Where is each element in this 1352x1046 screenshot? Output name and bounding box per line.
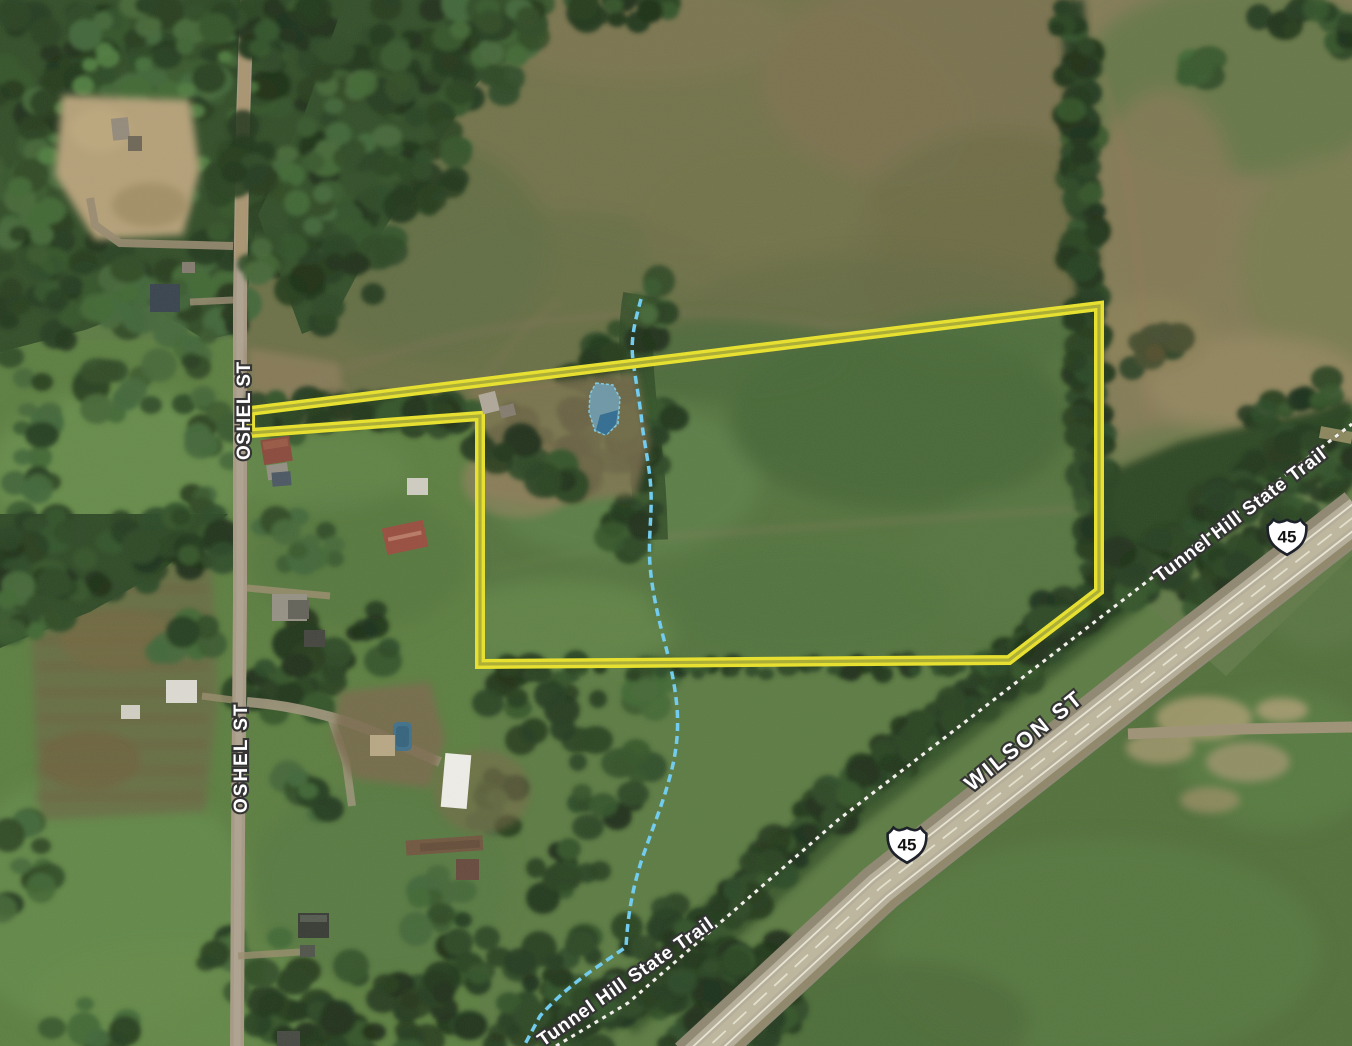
svg-text:45: 45 [898,836,917,855]
svg-text:45: 45 [1278,528,1297,547]
svg-text:OSHEL ST: OSHEL ST [231,702,252,813]
svg-text:OSHEL ST: OSHEL ST [234,361,255,460]
